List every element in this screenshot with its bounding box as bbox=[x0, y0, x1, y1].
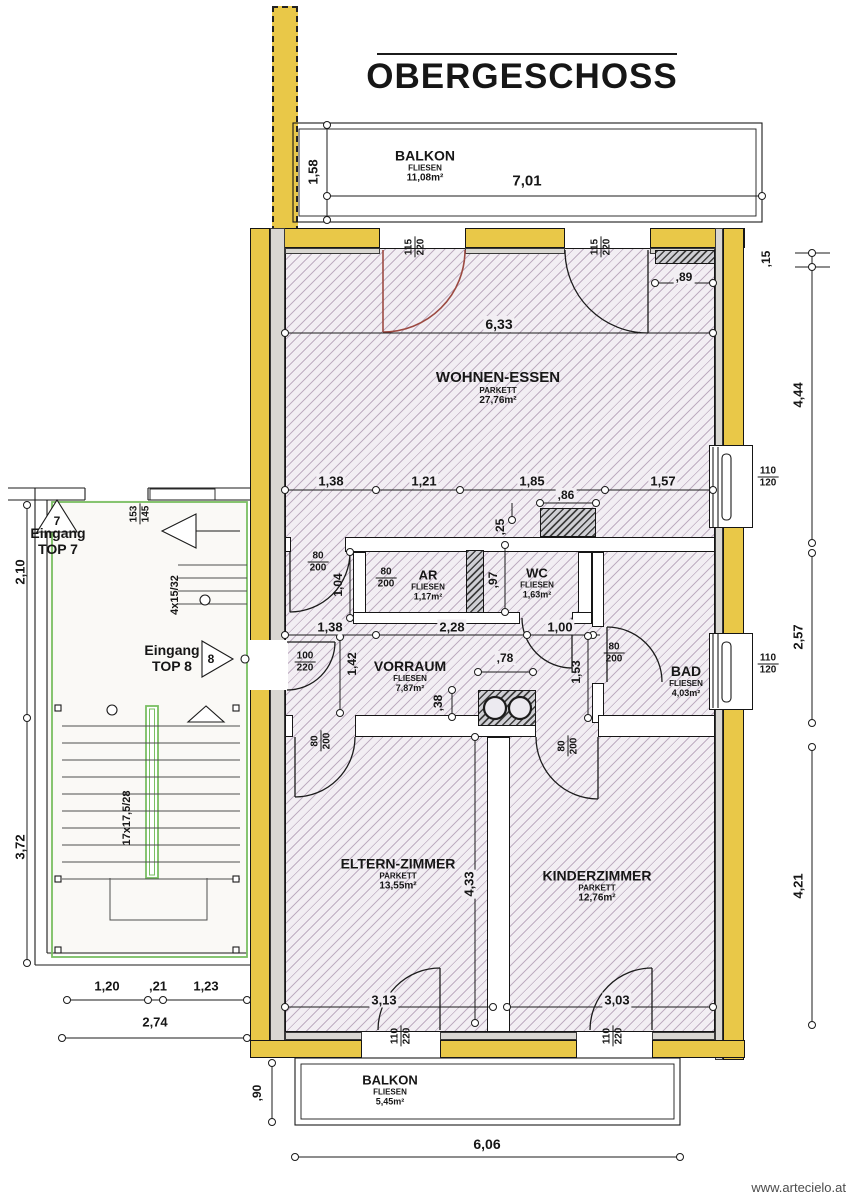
dim-balkon-top-width: 7,01 bbox=[512, 173, 541, 190]
dim-kamin-width: ,78 bbox=[495, 651, 516, 665]
dim-sw-b: ,21 bbox=[149, 979, 167, 994]
dim-niche-top: ,89 bbox=[674, 270, 695, 284]
watermark: www.artecielo.at bbox=[751, 1180, 846, 1195]
stair-upper-run-label: 4x15/32 bbox=[169, 575, 181, 615]
dim-shaft-offset: ,25 bbox=[493, 519, 507, 536]
wall-south-inner bbox=[285, 1032, 362, 1040]
dim-stair-upper: 2,10 bbox=[13, 559, 28, 584]
wall-bedrooms-north bbox=[598, 715, 715, 737]
window-size: 110120 bbox=[758, 466, 779, 489]
wall-wc-east bbox=[578, 552, 592, 616]
window-right-upper bbox=[709, 445, 753, 528]
door-size: 80200 bbox=[310, 731, 333, 752]
dim-hall-d: 1,57 bbox=[648, 474, 677, 489]
room-eltern-label: ELTERN-ZIMMER PARKETT 13,55m² bbox=[341, 856, 456, 891]
dim-hall-b: 1,21 bbox=[409, 474, 438, 489]
dim-hall-c: 1,85 bbox=[517, 474, 546, 489]
room-bad-label: BAD FLIESEN 4,03m² bbox=[669, 664, 703, 698]
dim-vor-a: 1,38 bbox=[315, 620, 344, 635]
room-kinder-label: KINDERZIMMER PARKETT 12,76m² bbox=[543, 868, 652, 903]
dim-right-middle: 2,57 bbox=[791, 624, 806, 649]
dim-vor-d: 1,42 bbox=[345, 652, 359, 675]
entrance-top7-number: 7 bbox=[54, 514, 61, 528]
entry-door-opening bbox=[248, 640, 288, 690]
wall-wohnen-south bbox=[345, 537, 715, 552]
shaft-above-wc bbox=[540, 508, 596, 537]
dim-balkon-top-depth: 1,58 bbox=[306, 159, 321, 184]
dim-balkon-bottom-depth: ,90 bbox=[250, 1085, 264, 1102]
dim-kinder-width: 3,03 bbox=[602, 993, 631, 1008]
wall-north bbox=[465, 228, 565, 248]
dim-step: ,38 bbox=[431, 695, 445, 712]
dim-wohnen-width: 6,33 bbox=[483, 316, 514, 332]
wall-north-inner bbox=[285, 248, 380, 254]
dim-bed-depth: 4,33 bbox=[462, 869, 477, 898]
room-wohnen-label: WOHNEN-ESSEN PARKETT 27,76m² bbox=[436, 370, 560, 406]
wall-north-inner bbox=[465, 248, 565, 254]
dim-balkon-bottom-width: 6,06 bbox=[473, 1136, 500, 1152]
dim-eltern-width: 3,13 bbox=[369, 993, 398, 1008]
page-title: OBERGESCHOSS bbox=[366, 57, 678, 97]
window-size: 110120 bbox=[758, 653, 779, 676]
entrance-top8-number: 8 bbox=[208, 652, 215, 666]
dim-sw-c: 1,23 bbox=[193, 979, 218, 994]
balcony-door-bottom-size: 110220 bbox=[602, 1026, 625, 1047]
wall-south bbox=[250, 1040, 362, 1058]
room-wc-label: WC FLIESEN 1,63m² bbox=[520, 566, 554, 599]
dim-wc-depth: ,97 bbox=[486, 572, 500, 589]
wall-bad-west bbox=[592, 552, 604, 627]
wall-south-inner bbox=[440, 1032, 577, 1040]
dim-stair-lower: 3,72 bbox=[13, 834, 28, 859]
room-balkon-bottom-label: BALKON FLIESEN 5,45m² bbox=[362, 1073, 418, 1106]
shaft-ar-wc bbox=[466, 550, 484, 616]
dim-shaft-width: ,86 bbox=[556, 488, 577, 502]
dim-sw-a: 1,20 bbox=[94, 979, 119, 994]
dim-vor-b: 2,28 bbox=[437, 620, 466, 635]
door-size: 80200 bbox=[308, 551, 329, 574]
wall-bedroom-divider bbox=[487, 737, 510, 1032]
entry-door-size: 100220 bbox=[295, 651, 316, 674]
entrance-top8-label: Eingang TOP 8 bbox=[144, 642, 199, 674]
dim-niche-depth: 1,53 bbox=[569, 660, 583, 683]
room-balkon-top-label: BALKON FLIESEN 11,08m² bbox=[395, 148, 455, 183]
wall-wohnen-south bbox=[285, 537, 291, 552]
wall-south bbox=[652, 1040, 745, 1058]
dim-vor-c: 1,00 bbox=[545, 620, 574, 635]
door-size: 80200 bbox=[376, 567, 397, 590]
door-size: 80200 bbox=[557, 736, 580, 757]
wall-south-inner bbox=[652, 1032, 715, 1040]
dim-ar-door: 1,04 bbox=[331, 573, 345, 596]
dim-right-upper: 4,44 bbox=[791, 382, 806, 407]
entrance-top7-label: Eingang TOP 7 bbox=[30, 525, 85, 557]
balcony-door-size: 115220 bbox=[590, 237, 613, 258]
stair-window-size: 153145 bbox=[129, 504, 152, 525]
wall-south bbox=[440, 1040, 577, 1058]
balcony-door-size: 115220 bbox=[404, 237, 427, 258]
stair-main-run-label: 17x17,5/28 bbox=[121, 790, 133, 845]
balcony-door-bottom-size: 110220 bbox=[390, 1026, 413, 1047]
window-right-lower bbox=[709, 633, 753, 710]
wall-arwc-south bbox=[572, 612, 592, 624]
neighbor-wall bbox=[272, 6, 298, 232]
shaft-top-right bbox=[655, 250, 715, 264]
dim-hall-a: 1,38 bbox=[316, 474, 345, 489]
dim-right-lower: 4,21 bbox=[791, 873, 806, 898]
stairwell-area bbox=[47, 500, 247, 955]
door-size: 80200 bbox=[604, 642, 625, 665]
chimney-block bbox=[478, 690, 536, 726]
room-ar-label: AR FLIESEN 1,17m² bbox=[411, 568, 445, 601]
dim-sw-total: 2,74 bbox=[142, 1015, 167, 1030]
floorplan-page: OBERGESCHOSS BALKON FLIESEN 11,08m² WOHN… bbox=[0, 0, 850, 1200]
wall-ar-west bbox=[353, 552, 366, 618]
room-vorraum-label: VORRAUM FLIESEN 7,87m² bbox=[374, 659, 446, 693]
wall-bedrooms-north bbox=[285, 715, 293, 737]
dim-right-offset: ,15 bbox=[759, 251, 773, 268]
